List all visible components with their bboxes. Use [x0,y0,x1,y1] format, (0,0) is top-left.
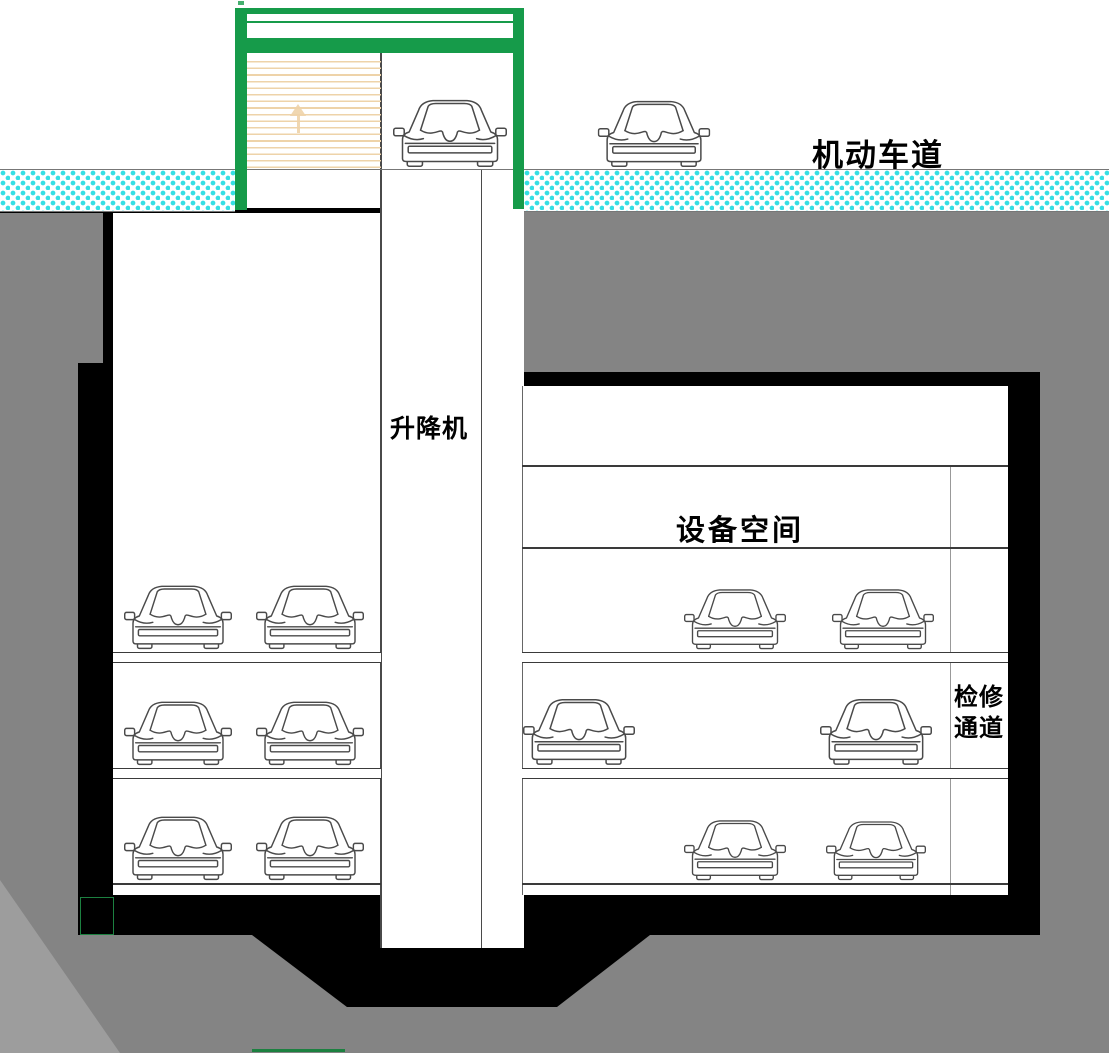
lift-shaft-left-line [380,53,382,948]
maintenance-passage-line [950,465,951,895]
car-front-icon [124,696,232,768]
floor-slab [113,768,381,779]
floor-line [522,883,1008,885]
entrance-header-bar [235,38,524,53]
car-front-icon [392,94,508,170]
right-chamber-left-line [522,386,523,895]
label-lift: 升降机 [390,409,468,445]
entrance-post-left [235,8,247,210]
label-motor-vehicle-lane: 机动车道 [812,130,944,175]
arrow-up-icon-stem [297,115,300,133]
frame-top-mark [238,1,244,5]
left-chamber [113,213,381,895]
label-equipment-space: 设备空间 [676,507,804,549]
right-base-slab [524,895,1040,935]
car-front-icon [124,580,232,652]
car-front-icon [597,95,711,170]
car-front-icon [832,584,934,652]
entrance-post-right [513,8,524,209]
floor-slab [522,768,1008,779]
base-detail-outline [80,897,114,935]
floor-line [113,883,381,885]
car-front-icon [256,696,364,768]
lift-pit-base [381,948,524,1007]
car-front-icon [684,815,786,883]
lift-shaft-right-line [481,170,483,948]
car-front-icon [684,584,786,652]
roller-door [247,56,381,170]
floor-slab [522,652,1008,663]
floor-slab [113,652,381,663]
right-wall [1008,372,1040,935]
equipment-level-top-line [522,465,1008,467]
label-maintenance-passage: 检修 通道 [952,682,1006,744]
entrance-roof-bar [235,8,524,14]
car-front-icon [124,811,232,883]
car-front-icon [256,580,364,652]
right-ceiling-slab [513,372,1040,386]
car-front-icon [820,693,932,768]
lift-shaft [381,170,524,948]
road-pavement-hatch-right [524,170,1109,212]
left-wall-upper [103,209,113,365]
car-front-icon [523,693,635,768]
label-maintenance-line2: 通道 [952,713,1006,744]
entrance-roof-thin-line [247,21,513,23]
underground-parking-section-diagram: 机动车道 升降机 设备空间 检修 通道 [0,0,1109,1053]
left-wall-lower [78,363,113,935]
bottom-green-line [252,1049,345,1052]
left-base-slab [113,895,381,935]
car-front-icon [826,816,926,883]
road-pavement-hatch-left [0,170,235,212]
car-front-icon [256,811,364,883]
label-maintenance-line1: 检修 [952,682,1006,713]
